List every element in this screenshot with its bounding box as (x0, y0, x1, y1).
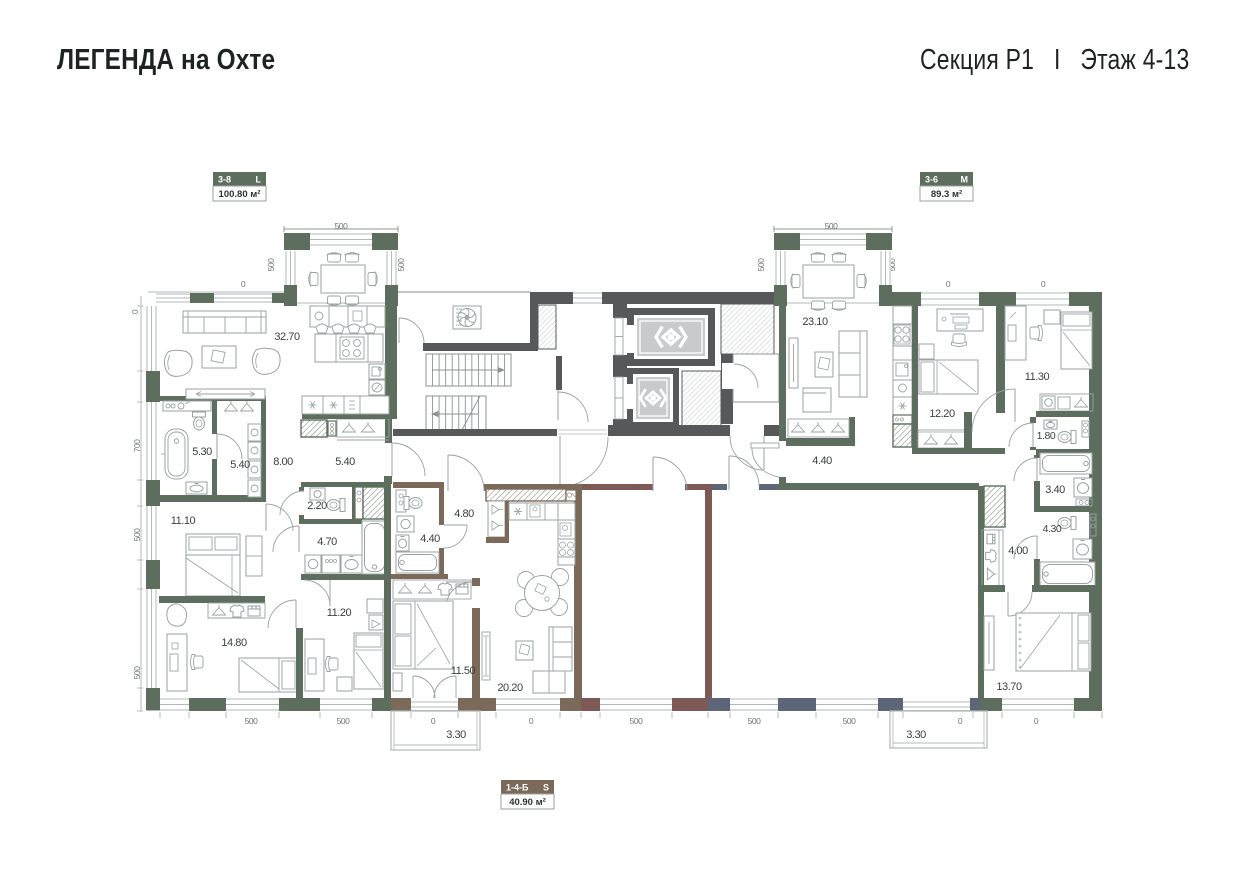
svg-text:100.80 м²: 100.80 м² (219, 189, 261, 200)
svg-text:3.30: 3.30 (906, 729, 926, 741)
svg-text:20.20: 20.20 (497, 682, 523, 694)
svg-text:500: 500 (396, 258, 406, 272)
svg-text:0: 0 (1041, 279, 1046, 289)
svg-text:5.30: 5.30 (192, 446, 212, 458)
svg-text:L: L (256, 175, 262, 185)
svg-text:500: 500 (630, 716, 644, 726)
svg-text:500: 500 (748, 716, 762, 726)
svg-text:40.90 м²: 40.90 м² (509, 797, 546, 808)
svg-text:23.10: 23.10 (802, 316, 828, 328)
svg-text:32.70: 32.70 (274, 331, 300, 343)
svg-text:500: 500 (337, 716, 351, 726)
svg-text:M: M (961, 175, 969, 185)
svg-text:4.40: 4.40 (420, 533, 440, 545)
svg-text:4.30: 4.30 (1043, 523, 1062, 535)
svg-text:1-4-Б: 1-4-Б (506, 783, 529, 793)
svg-text:14.80: 14.80 (221, 637, 247, 649)
svg-text:5.40: 5.40 (335, 456, 355, 468)
svg-text:0: 0 (958, 716, 963, 726)
svg-text:11.10: 11.10 (171, 515, 196, 527)
svg-text:11.50: 11.50 (451, 665, 476, 677)
svg-text:5.40: 5.40 (230, 459, 250, 471)
svg-text:500: 500 (825, 221, 839, 231)
svg-text:0: 0 (1034, 716, 1039, 726)
svg-text:0: 0 (130, 309, 140, 314)
svg-text:0: 0 (946, 279, 951, 289)
svg-text:4.70: 4.70 (317, 536, 337, 548)
svg-text:12.20: 12.20 (929, 408, 955, 420)
svg-text:3.30: 3.30 (446, 729, 466, 741)
svg-text:500: 500 (756, 258, 766, 272)
svg-text:S: S (543, 783, 549, 793)
svg-text:500: 500 (245, 716, 259, 726)
svg-text:500: 500 (266, 258, 276, 272)
svg-text:3-8: 3-8 (218, 175, 231, 185)
svg-text:4.40: 4.40 (812, 455, 832, 467)
svg-text:1.80: 1.80 (1037, 430, 1056, 442)
svg-text:4.80: 4.80 (454, 508, 474, 520)
svg-text:500: 500 (843, 716, 857, 726)
svg-text:13.70: 13.70 (996, 681, 1022, 693)
svg-text:8.00: 8.00 (273, 456, 293, 468)
svg-text:3.40: 3.40 (1045, 484, 1065, 496)
svg-text:2.20: 2.20 (307, 500, 327, 512)
svg-text:3-6: 3-6 (925, 175, 938, 185)
svg-text:11.20: 11.20 (327, 607, 352, 619)
svg-text:11.30: 11.30 (1025, 371, 1050, 383)
svg-text:4.00: 4.00 (1008, 545, 1028, 557)
svg-text:0: 0 (241, 279, 246, 289)
svg-text:500: 500 (335, 221, 349, 231)
svg-text:89.3 м²: 89.3 м² (931, 189, 962, 200)
svg-text:0: 0 (431, 716, 436, 726)
svg-text:0: 0 (529, 716, 534, 726)
